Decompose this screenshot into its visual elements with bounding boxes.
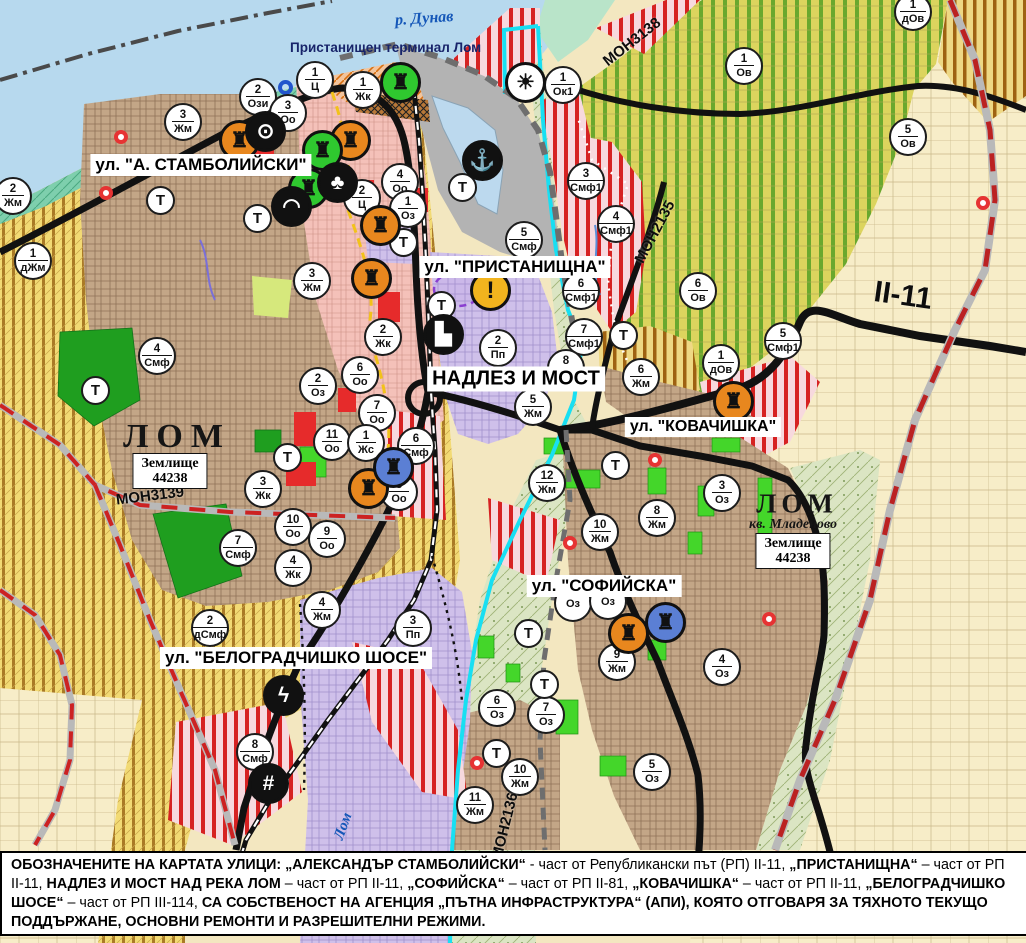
footer-text: – част от РП II-11, — [281, 876, 407, 892]
footer-street-name: „ПРИСТАНИЩНА“ — [789, 857, 917, 873]
footer-text: – част от РП II-81, — [505, 876, 632, 892]
ownership-note: ОБОЗНАЧЕНИТЕ НА КАРТАТА УЛИЦИ: „АЛЕКСАНД… — [0, 851, 1026, 936]
footer-street-name: НАДЛЕЗ И МОСТ НАД РЕКА ЛОМ — [47, 876, 281, 892]
industry-lavender-small — [364, 224, 416, 264]
footer-text: – част от РП II-11, — [739, 876, 865, 892]
footer-street-name: ОБОЗНАЧЕНИТЕ НА КАРТАТА УЛИЦИ: „АЛЕКСАНД… — [11, 857, 526, 873]
footer-text: – част от РП III-114, — [64, 895, 202, 911]
zone-layer — [0, 0, 1026, 943]
purple-dashed-zone — [434, 272, 482, 306]
light-green-patch — [252, 276, 292, 318]
footer-street-name: „СОФИЙСКА“ — [407, 876, 505, 892]
basemap-svg — [0, 0, 1026, 943]
footer-street-name: „КОВАЧИШКА“ — [632, 876, 739, 892]
footer-text: - част от Републикански път (РП) II-11, — [526, 857, 790, 873]
zoning-map-canvas[interactable]: 2Ози1Ц3Оо1Жк3Жм2Жм1дЖм4Смф1Ок13Смф15Смф4… — [0, 0, 1026, 943]
